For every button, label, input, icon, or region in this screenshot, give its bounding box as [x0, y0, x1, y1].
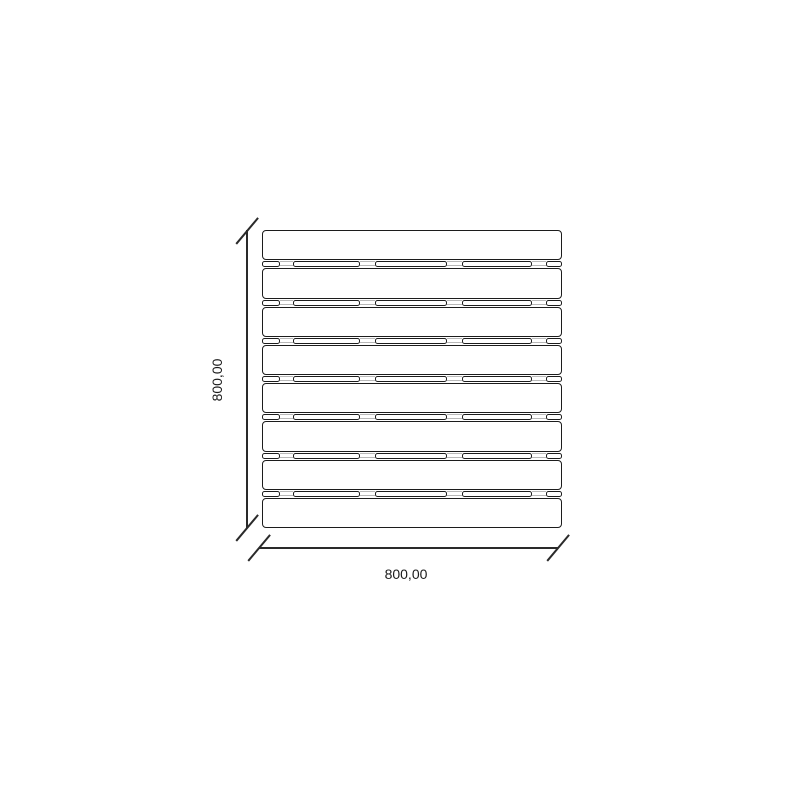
hidden-batten-line [447, 261, 462, 266]
hidden-batten-line [280, 376, 293, 381]
gap-segment [546, 414, 562, 420]
hidden-batten-line [360, 414, 375, 419]
slat-gap [262, 490, 562, 498]
gap-segment [546, 491, 562, 497]
deck-slat [262, 460, 562, 490]
hidden-batten-line [360, 338, 375, 343]
gap-segment [375, 300, 447, 306]
gap-segment [293, 453, 360, 459]
gap-segment [462, 338, 532, 344]
gap-segment [375, 261, 447, 267]
width-dimension-label: 800,00 [366, 566, 446, 582]
deck-slat [262, 498, 562, 528]
deck-slat [262, 307, 562, 337]
gap-segment [462, 261, 532, 267]
hidden-batten-line [280, 414, 293, 419]
gap-segment [262, 300, 280, 306]
gap-segment [375, 414, 447, 420]
hidden-batten-line [280, 300, 293, 305]
hidden-batten-line [360, 261, 375, 266]
gap-segment [262, 338, 280, 344]
hidden-batten-line [280, 338, 293, 343]
gap-segment [293, 414, 360, 420]
gap-segment [293, 338, 360, 344]
deck-slat [262, 383, 562, 413]
gap-segment [262, 376, 280, 382]
gap-segment [462, 300, 532, 306]
hidden-batten-line [532, 491, 546, 496]
gap-segment [293, 376, 360, 382]
hidden-batten-line [532, 453, 546, 458]
gap-segment [375, 453, 447, 459]
slat-gap [262, 413, 562, 421]
gap-segment [462, 376, 532, 382]
height-dimension-label: 800,00 [209, 350, 225, 410]
hidden-batten-line [532, 338, 546, 343]
gap-segment [262, 453, 280, 459]
slat-gap [262, 260, 562, 268]
gap-segment [546, 453, 562, 459]
gap-segment [375, 376, 447, 382]
gap-segment [462, 453, 532, 459]
gap-segment [262, 261, 280, 267]
vertical-dimension-line [246, 230, 248, 528]
gap-segment [262, 414, 280, 420]
gap-segment [293, 300, 360, 306]
deck-slat [262, 421, 562, 451]
hidden-batten-line [447, 491, 462, 496]
hidden-batten-line [447, 300, 462, 305]
hidden-batten-line [360, 376, 375, 381]
hidden-batten-line [447, 338, 462, 343]
hidden-batten-line [532, 261, 546, 266]
gap-segment [293, 261, 360, 267]
deck-slat [262, 268, 562, 298]
slat-gap [262, 452, 562, 460]
gap-segment [375, 338, 447, 344]
hidden-batten-line [360, 491, 375, 496]
hidden-batten-line [280, 261, 293, 266]
gap-segment [546, 300, 562, 306]
horizontal-dimension-line [259, 547, 558, 549]
hidden-batten-line [532, 300, 546, 305]
hidden-batten-line [280, 453, 293, 458]
deck-slat [262, 345, 562, 375]
hidden-batten-line [532, 376, 546, 381]
hidden-batten-line [280, 491, 293, 496]
hidden-batten-line [447, 414, 462, 419]
slat-gap [262, 337, 562, 345]
gap-segment [462, 491, 532, 497]
hidden-batten-line [360, 453, 375, 458]
technical-drawing-canvas: 800,00 800,00 [0, 0, 800, 800]
gap-segment [462, 414, 532, 420]
gap-segment [546, 338, 562, 344]
deck-slat [262, 230, 562, 260]
gap-segment [546, 376, 562, 382]
deck-tile-boards [262, 230, 562, 528]
slat-gap [262, 375, 562, 383]
gap-segment [293, 491, 360, 497]
hidden-batten-line [360, 300, 375, 305]
slat-gap [262, 299, 562, 307]
gap-segment [375, 491, 447, 497]
gap-segment [262, 491, 280, 497]
hidden-batten-line [532, 414, 546, 419]
hidden-batten-line [447, 376, 462, 381]
hidden-batten-line [447, 453, 462, 458]
gap-segment [546, 261, 562, 267]
